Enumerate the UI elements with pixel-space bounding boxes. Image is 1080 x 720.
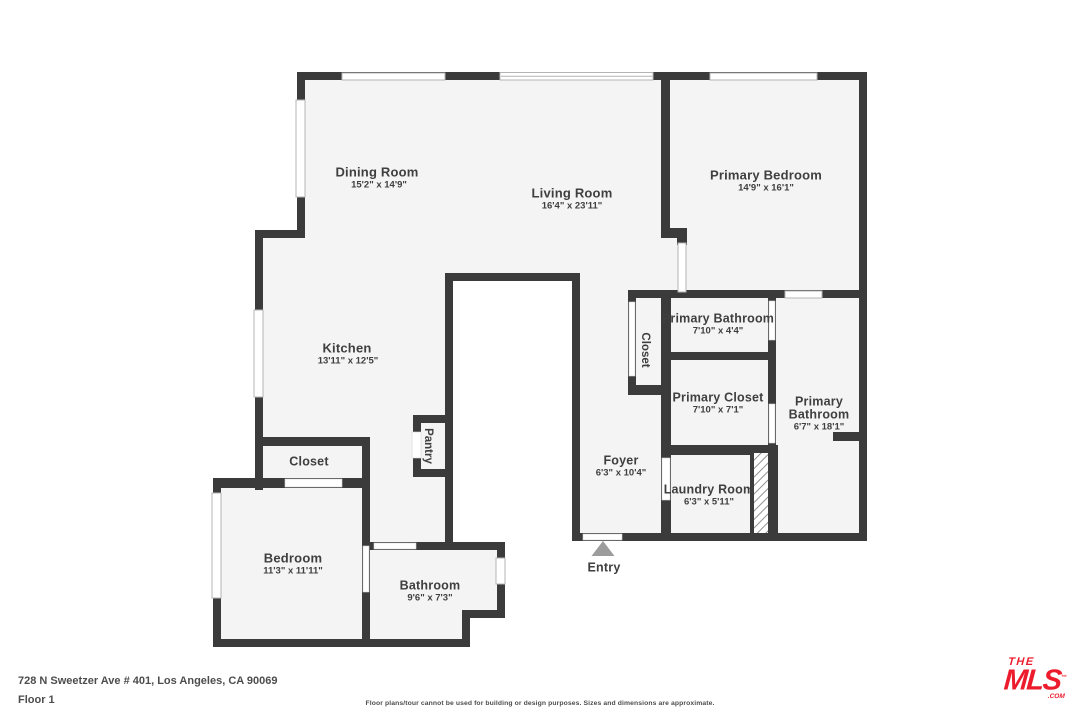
window (254, 310, 263, 397)
room-dims-living: 16'4" x 23'11" (542, 200, 603, 211)
room-label-primary-bathroom: Primary Bathroom (662, 311, 774, 325)
room-dims-primary-closet: 7'10" x 7'1" (693, 404, 744, 415)
window (496, 558, 505, 584)
wall-segment (445, 273, 453, 543)
window (296, 100, 305, 197)
entry-label: Entry (588, 560, 621, 574)
room-label-primary-closet: Primary Closet (672, 390, 764, 404)
wall-segment (661, 72, 670, 235)
door-opening (374, 543, 416, 549)
wall-segment (255, 437, 370, 446)
room-dims-laundry: 6'3" x 5'11" (684, 496, 734, 507)
room-label-closet-hall: Closet (639, 332, 651, 367)
room-dims-primary-bedroom: 14'9" x 16'1" (738, 182, 794, 193)
wall-segment (445, 273, 580, 281)
wall-segment (833, 432, 867, 441)
room-dims-primary-bathroom: 7'10" x 4'4" (693, 325, 744, 336)
floor-plan: Dining Room 15'2" x 14'9" Living Room 16… (0, 0, 1080, 720)
wall-segment (213, 639, 470, 647)
entry-door-opening (583, 534, 622, 540)
room-label-primary-bathroom-2-line2: Bathroom (789, 407, 850, 421)
room-label-kitchen: Kitchen (322, 341, 371, 356)
room-label-primary-bathroom-2-line1: Primary (795, 394, 843, 408)
room-dims-dining: 15'2" x 14'9" (351, 179, 407, 190)
themls-logo-tm: ™ (1061, 675, 1067, 681)
room-label-dining: Dining Room (335, 165, 418, 180)
room-label-bedroom: Bedroom (264, 551, 322, 566)
room-label-closet-bedroom: Closet (289, 454, 329, 468)
window (785, 291, 822, 298)
room-dims-primary-bathroom-2: 6'7" x 18'1" (794, 421, 845, 432)
door-opening (412, 432, 421, 458)
wall-segment (663, 352, 776, 360)
door-opening (629, 302, 635, 376)
room-label-living: Living Room (532, 186, 613, 201)
room-label-laundry: Laundry Room (664, 482, 755, 496)
room-dims-bathroom: 9'6" x 7'3" (407, 592, 452, 603)
window (212, 493, 221, 598)
disclaimer-text: Floor plans/tour cannot be used for buil… (0, 700, 1080, 707)
wall-segment (572, 273, 580, 538)
bathroom-notch (470, 618, 512, 650)
wall-segment (677, 228, 687, 245)
door-opening (769, 404, 775, 443)
room-label-primary-bedroom: Primary Bedroom (710, 168, 822, 183)
address-text: 728 N Sweetzer Ave # 401, Los Angeles, C… (18, 675, 277, 687)
window (710, 73, 817, 80)
wall-segment (362, 437, 370, 647)
room-label-pantry: Pantry (422, 428, 434, 464)
themls-logo-mls-text: MLS (1003, 665, 1062, 697)
room-dims-bedroom: 11'3" x 11'11" (263, 565, 323, 576)
void-area (445, 273, 580, 545)
themls-logo-mls: MLS™ (1003, 667, 1067, 693)
entry-arrow-icon (592, 541, 615, 556)
window (342, 73, 445, 80)
door-opening (285, 479, 342, 487)
door-opening (363, 546, 369, 592)
window (678, 243, 686, 292)
room-dims-kitchen: 13'11" x 12'5" (318, 355, 379, 366)
room-label-bathroom: Bathroom (400, 578, 461, 592)
wall-segment (859, 72, 867, 541)
themls-logo: THE MLS™ .COM (1003, 657, 1068, 700)
room-label-foyer: Foyer (603, 453, 638, 467)
room-dims-foyer: 6'3" x 10'4" (596, 467, 647, 478)
hatch-shaft (754, 453, 768, 533)
